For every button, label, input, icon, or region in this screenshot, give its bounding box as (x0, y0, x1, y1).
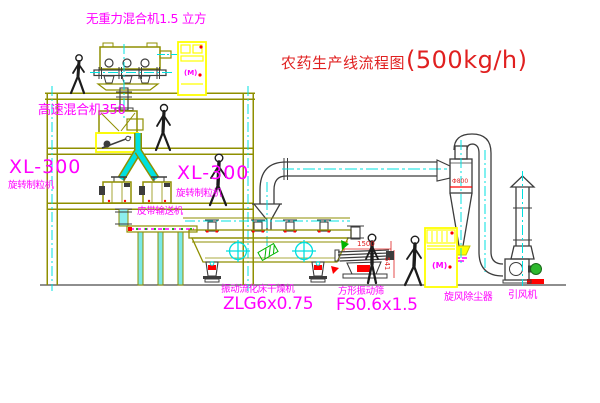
dim-cyclone: Φ800 (452, 179, 468, 185)
dim-sieve-height: 541 (383, 257, 390, 270)
title-text: 农药生产线流程图 (281, 52, 405, 73)
match-mark-circles (226, 240, 316, 262)
person-ground-2 (405, 236, 421, 285)
flow-diagram-canvas: 农药生产线流程图(500kg/h) 无重力混合机1.5 立方 高速混合机350 … (0, 0, 600, 403)
dryer-leg-right (309, 262, 327, 282)
label-gravity-free-mixer: 无重力混合机1.5 立方 (86, 13, 206, 26)
building-structure (45, 93, 255, 285)
control-cabinet-2 (425, 228, 457, 287)
fan-motor (531, 264, 542, 275)
indicator-dot (448, 265, 451, 268)
label-granulator-left-model: XL-300 (9, 158, 81, 177)
label-belt-conveyor: 皮带输送机 (137, 207, 183, 217)
label-granulator-left-name: 旋转制粒机 (8, 181, 54, 191)
label-granulator-right-model: XL-300 (177, 164, 249, 183)
rotary-granulator-left (99, 177, 131, 203)
title-capacity: (500kg/h) (406, 46, 527, 74)
flow-arrow-red (331, 266, 339, 274)
dryer-leg-left (203, 262, 221, 282)
label-granulator-right-name: 旋转制粒机 (176, 189, 222, 199)
label-cyclone: 旋风除尘器 (444, 293, 493, 303)
person-roof (71, 55, 84, 93)
stack-and-fan (503, 171, 544, 286)
dim-sieve-length: 1500 (357, 241, 375, 248)
label-high-speed-mixer: 高速混合机350 (38, 104, 125, 117)
person-floor2 (156, 105, 170, 151)
label-sieve-model: FS0.6x1.5 (336, 297, 418, 314)
exhaust-duct (252, 158, 448, 248)
indicator-dot (450, 231, 453, 234)
cabinet2-marking: (M) (432, 262, 447, 270)
label-dryer-model: ZLG6x0.75 (223, 296, 313, 313)
rotary-granulator-right (139, 177, 171, 203)
cabinet1-marking: (M) (184, 70, 197, 77)
indicator-dot (198, 73, 201, 76)
diagram-title: 农药生产线流程图(500kg/h) (281, 46, 527, 74)
belt-conveyor (115, 209, 197, 285)
indicator-dot (199, 45, 202, 48)
label-fan: 引风机 (508, 291, 537, 301)
